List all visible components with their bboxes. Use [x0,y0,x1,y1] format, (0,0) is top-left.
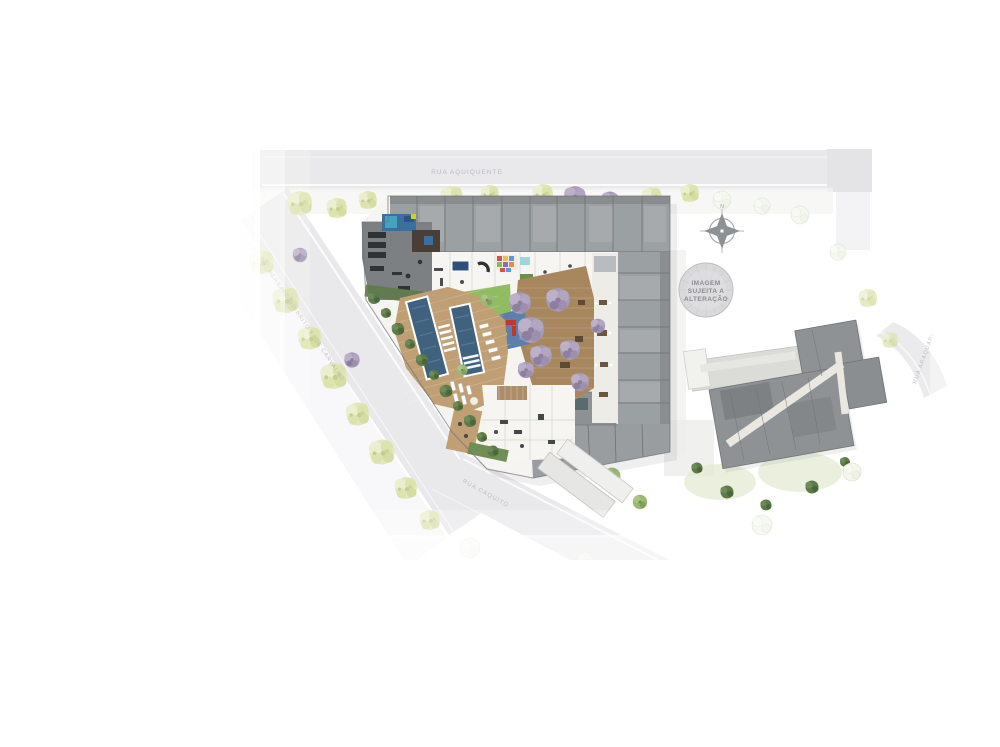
spa-tub [520,257,530,265]
right-units-column [618,252,670,424]
site-plan: IMAGEM SUJEITA A ALTERAÇÃO N RUA AQUIQUE… [0,0,1000,747]
street-corner-pad [827,149,872,192]
pool-table [452,261,469,271]
kids-playroom [496,255,518,272]
parasol [470,397,478,405]
lobby-gym-terrace [362,214,440,303]
watermark-line3: ALTERAÇÃO [684,294,728,303]
watermark-line1: IMAGEM [691,280,720,287]
lounge-corridor [592,253,618,423]
watermark-stamp: IMAGEM SUJEITA A ALTERAÇÃO [679,263,733,317]
page: IMAGEM SUJEITA A ALTERAÇÃO N RUA AQUIQUE… [0,0,1000,747]
street-label-top: RUA AQUIQUENTE [431,169,503,176]
compass-north-label: N [720,204,724,210]
watermark-line2: SUJEITA A [688,288,725,295]
phase2-dark-block [709,320,887,469]
pergola [497,386,527,400]
